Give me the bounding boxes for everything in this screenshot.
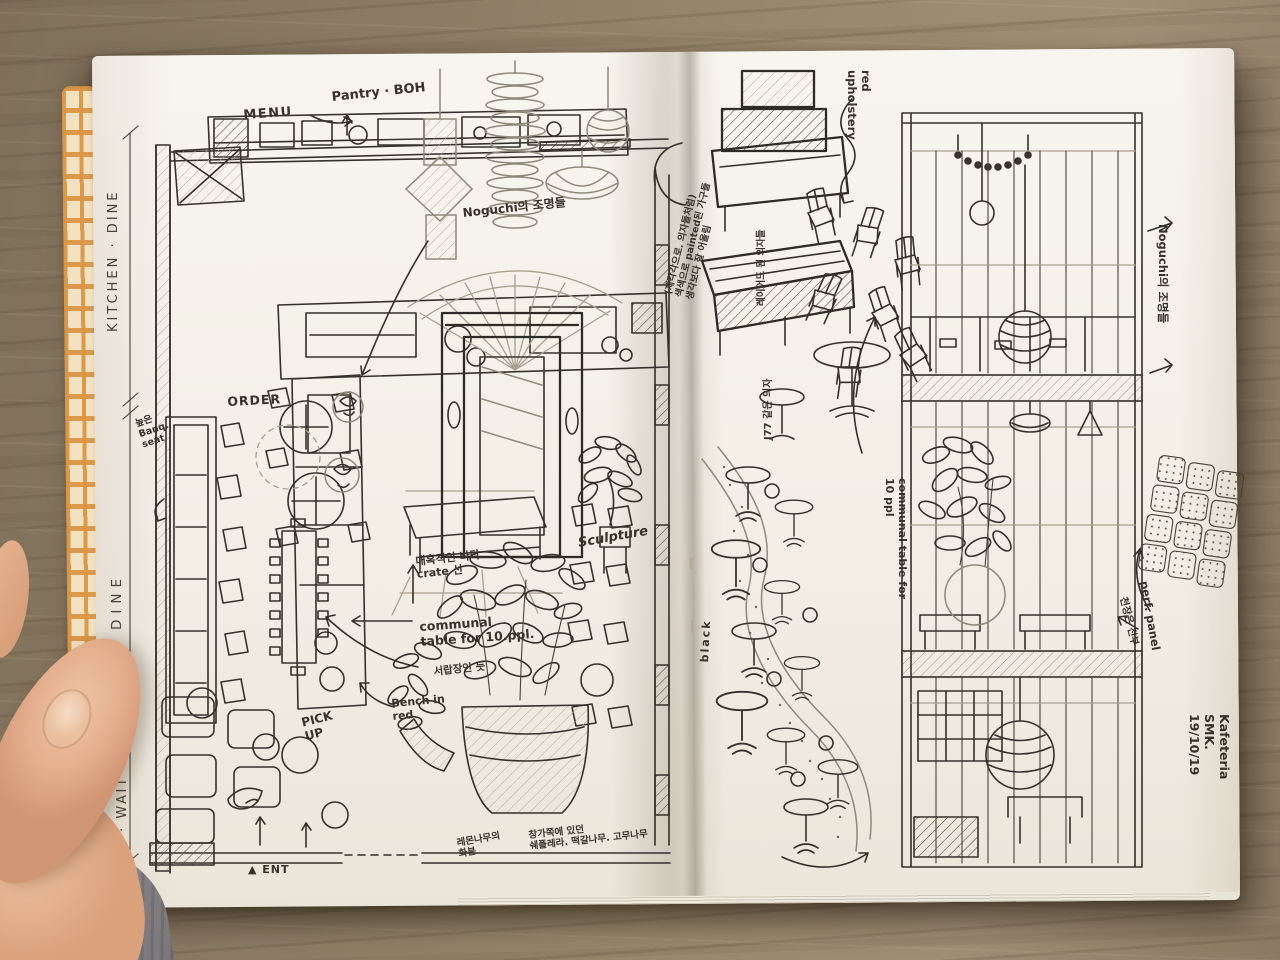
banquette-and-stools	[166, 417, 248, 723]
vignette-plant-on-stand	[575, 435, 644, 573]
perf-panel-study	[1137, 454, 1245, 589]
photo-of-sketchbook: KITCHEN · DINE DINE LOUNGE · WAIT MENU P…	[0, 0, 1280, 960]
lounge-furniture	[156, 688, 348, 847]
large-plant-and-pot	[385, 538, 588, 813]
walkway-edges	[702, 447, 871, 851]
red-upholstery-bench	[702, 241, 854, 355]
window-wall-elevation	[902, 113, 1142, 867]
vignette-portal	[442, 313, 582, 557]
pedestal-cafe-tables	[712, 467, 858, 853]
vignette-doorway	[404, 357, 578, 571]
menu-counter	[174, 109, 628, 205]
elevation-sketch	[690, 55, 1245, 895]
floor-plan-sketch	[110, 55, 690, 905]
elevation-plants	[916, 434, 1014, 625]
vignette-ceiling-pencil	[392, 271, 622, 617]
noguchi-lamp-sketches	[406, 61, 629, 259]
fingertip	[0, 538, 35, 660]
